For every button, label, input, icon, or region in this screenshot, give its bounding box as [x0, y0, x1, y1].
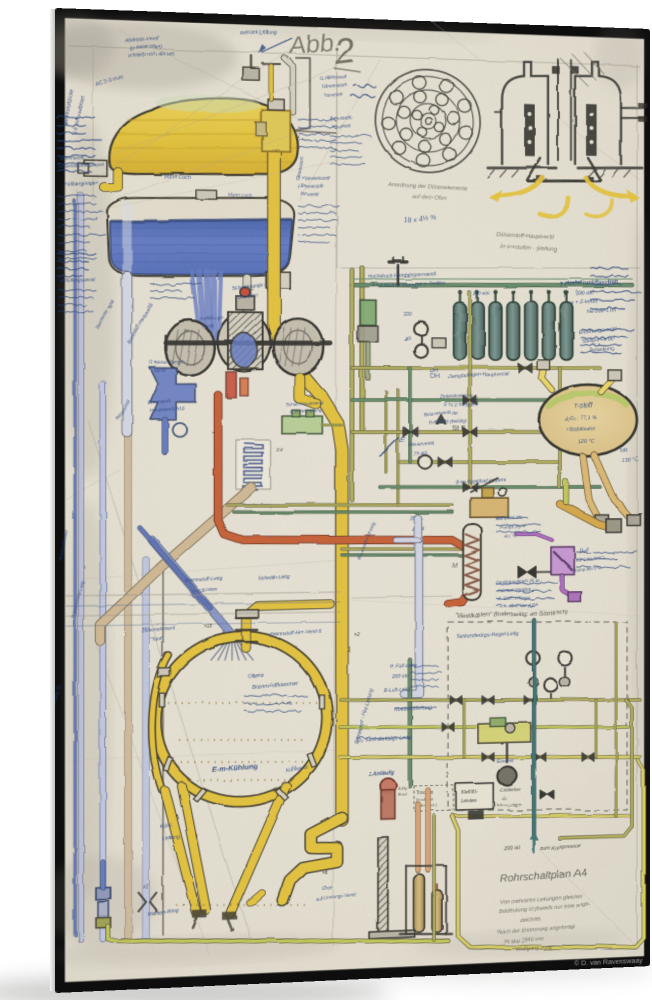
svg-text:Brücksicht-Leitg ½ in Entlüftu: Brücksicht-Leitg ½ in Entlüftung O₂: [55, 684, 63, 761]
svg-text:© D. van Ravenswaay: © D. van Ravenswaay: [574, 957, 642, 968]
